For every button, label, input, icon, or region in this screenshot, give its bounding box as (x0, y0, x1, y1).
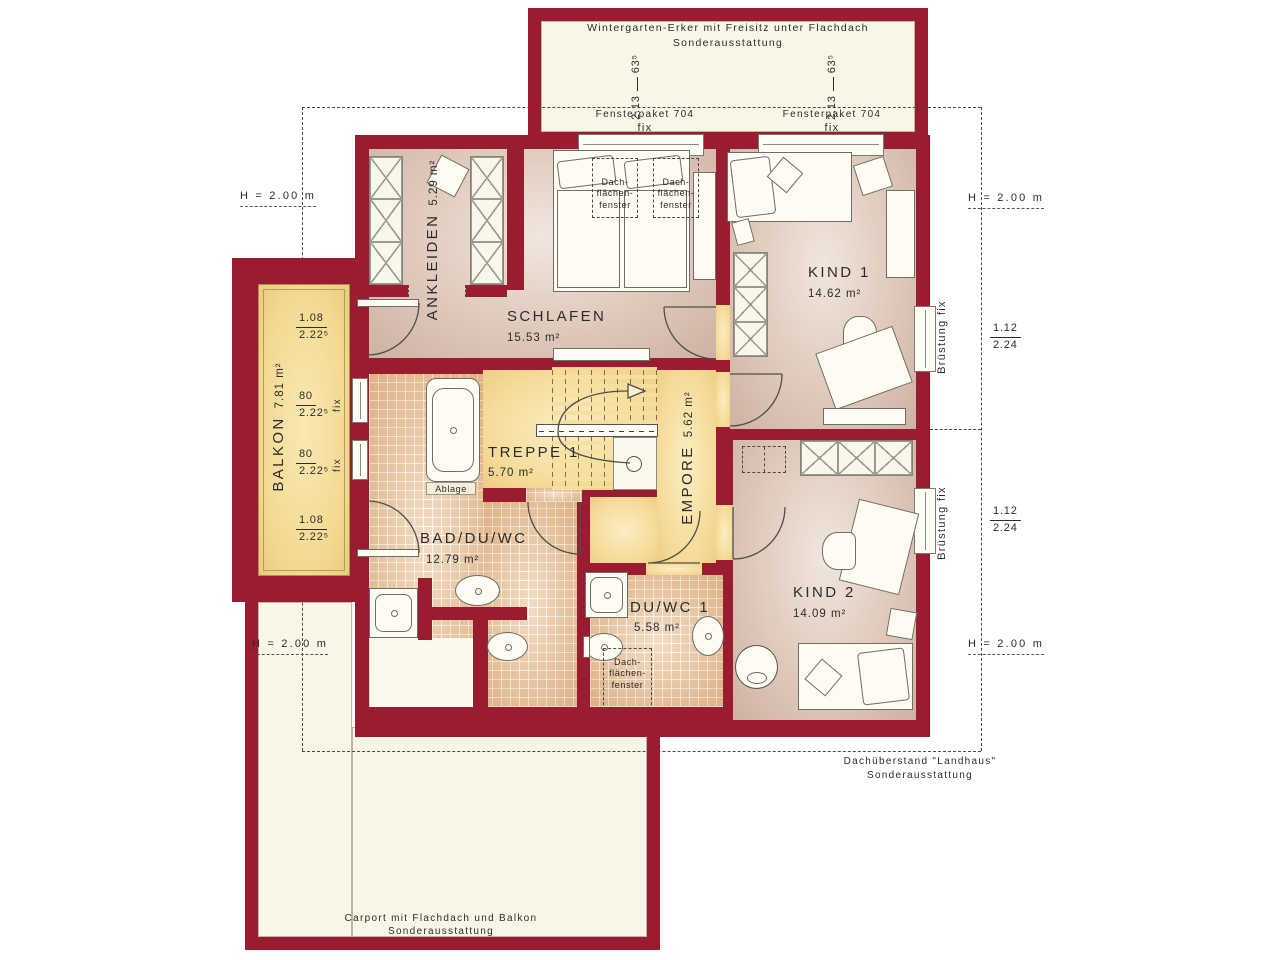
roof-window-outline: Dach- flächen- fenster (653, 158, 699, 218)
roof-window-label-line: fenster (660, 200, 692, 210)
door-gap-schlafen (716, 305, 730, 360)
height-label-top-left: H = 2.00 m (240, 190, 316, 207)
shelf (886, 190, 915, 278)
round-chair (735, 645, 778, 689)
dim-denominator: 2.22⁵ (296, 530, 332, 545)
room-area: 15.53 m² (507, 331, 606, 345)
fix-label: fix (331, 390, 345, 420)
bidet (487, 632, 528, 661)
roof-overhang-line-bottom (302, 751, 981, 752)
height-label-top-right: H = 2.00 m (968, 192, 1044, 209)
wardrobe (800, 440, 913, 476)
dim-denominator: 63⁵ (826, 54, 840, 73)
dim-denominator: 63⁵ (630, 54, 644, 73)
room-label-ankleiden: ANKLEIDEN 5.29 m² (416, 175, 450, 305)
roof-window-label: Dach- flächen- fenster (593, 177, 637, 211)
roof-window-label-line: Dach- (662, 177, 689, 187)
wardrobe-cell (471, 199, 503, 241)
room-label-balkon: BALKON 7.81 m² (262, 352, 296, 502)
dachueberstand-label-line2: Sonderausstattung (790, 770, 1050, 783)
wardrobe-cell (734, 322, 767, 356)
roof-window-label-line: fenster (612, 680, 644, 690)
height-label-bottom-right: H = 2.00 m (968, 638, 1044, 655)
floorplan-canvas: Dach- flächen- fenster Dach- flächen- fe… (0, 0, 1280, 960)
fix-text: fix (332, 458, 345, 472)
roof-window-outline: Dach- flächen- fenster (592, 158, 638, 218)
wardrobe-cell (370, 157, 402, 199)
room-area: 5.62 m² (682, 391, 696, 437)
bathtub-inner (432, 388, 474, 472)
height-label-bottom-left: H = 2.00 m (252, 638, 328, 655)
room-area: 5.58 m² (634, 621, 710, 635)
fix-label: fix (757, 122, 907, 136)
dim-denominator: 2.24 (990, 338, 1021, 353)
roof-window-label-line: Dach- (614, 657, 641, 667)
balkon-fix-dimension: 80 2.22⁵ (296, 390, 332, 421)
roof-window-label-line: fenster (599, 200, 631, 210)
floor-corridor (590, 497, 657, 563)
roof-window-label: Dach- flächen- fenster (654, 177, 698, 211)
room-area: 5.29 m² (427, 160, 441, 206)
wall-ankleiden-stub-left (369, 285, 408, 297)
carport-wall-right (647, 722, 660, 950)
fensterpaket-label: Fensterpaket 704 (570, 109, 720, 122)
pillow (730, 156, 777, 218)
wardrobe (369, 156, 403, 285)
bruestung-text: Brüstung fix (936, 486, 950, 560)
dim-denominator: 2.22⁵ (296, 406, 332, 421)
wardrobe-cell (370, 199, 402, 241)
room-name: BAD/DU/WC (420, 530, 527, 549)
wardrobe (470, 156, 504, 285)
round-chair-seat (747, 672, 767, 684)
room-label-treppe: TREPPE 1 5.70 m² (488, 444, 580, 480)
wardrobe-cell (838, 441, 875, 475)
room-area: 5.70 m² (488, 466, 580, 480)
desk-chair (822, 532, 856, 570)
fensterpaket-label: Fensterpaket 704 (757, 109, 907, 122)
shower-tray (375, 594, 412, 632)
room-label-empore: EMPORE 5.62 m² (672, 388, 704, 528)
wall-ankleiden-schlafen (507, 149, 524, 290)
roof-window-label: Dach- flächen- fenster (604, 657, 651, 691)
shower-tray (590, 577, 623, 613)
dim-denominator: 2.22⁵ (296, 328, 332, 343)
nightstand (886, 608, 917, 640)
roof-window-label-line: Dach- (601, 177, 628, 187)
dachueberstand-label-line1: Dachüberstand "Landhaus" (790, 756, 1050, 769)
door-leaf-bad-balkon (357, 549, 419, 557)
bay-title-line1: Wintergarten-Erker mit Freisitz unter Fl… (528, 22, 928, 35)
wardrobe-cell (370, 242, 402, 284)
wardrobe-cell (471, 242, 503, 284)
room-name: SCHLAFEN (507, 308, 606, 327)
bay-title-line2: Sonderausstattung (528, 37, 928, 50)
carport-label-line2: Sonderausstattung (246, 926, 636, 939)
room-area: 12.79 m² (426, 553, 527, 567)
balkon-fix-dimension: 80 2.22⁵ (296, 448, 332, 479)
stairs-post (626, 456, 642, 472)
room-name: TREPPE 1 (488, 444, 580, 463)
dim-divider (637, 77, 638, 91)
room-label-kind2: KIND 2 14.09 m² (793, 584, 856, 621)
window-balkon-fix-2 (352, 440, 368, 480)
stairs-upper-flight (552, 367, 657, 424)
wall-ankleiden-stub-right (466, 285, 507, 297)
room-name: ANKLEIDEN (424, 214, 443, 321)
washbasin (455, 575, 500, 606)
dim-denominator: 2.22⁵ (296, 464, 332, 479)
wardrobe (733, 252, 768, 357)
room-name: EMPORE (679, 445, 698, 524)
cabinet-outline (742, 446, 786, 473)
ablage-label: Ablage (427, 484, 475, 495)
bruestung-fix-label: Brüstung fix (936, 478, 950, 568)
room-name: DU/WC 1 (630, 599, 710, 618)
wardrobe-cell (734, 287, 767, 321)
wardrobe-cell (734, 253, 767, 287)
room-label-bad: BAD/DU/WC 12.79 m² (420, 530, 527, 567)
room-name: BALKON (270, 416, 289, 491)
cabinet-divider (764, 447, 765, 472)
window-kind1-east (914, 306, 936, 372)
door-gap-kind1 (716, 372, 730, 427)
pillow (857, 647, 910, 705)
door-gap-kind2 (716, 505, 733, 560)
window-balkon-fix-1 (352, 378, 368, 423)
fix-label: fix (570, 122, 720, 136)
carport-floor (352, 727, 647, 937)
roof-window-label-line: flächen- (609, 668, 646, 678)
balkon-door-dimension: 1.08 2.22⁵ (296, 514, 332, 545)
room-name: KIND 2 (793, 584, 856, 603)
door-gap-bad (526, 488, 582, 502)
dim-numerator: 1.12 (990, 505, 1021, 521)
toilet-tank (583, 636, 590, 658)
roof-window-label-line: flächen- (658, 188, 695, 198)
wardrobe-cell (875, 441, 912, 475)
sideboard (553, 348, 650, 361)
dim-numerator: 80 (296, 448, 316, 464)
ablage-shelf: Ablage (426, 482, 476, 495)
sideboard (823, 408, 906, 425)
side-window-dimension: 1.12 2.24 (990, 322, 1021, 353)
dim-numerator: 80 (296, 390, 316, 406)
dim-divider (833, 77, 834, 91)
carport-wall-bottom (245, 937, 660, 950)
room-label-duwc: DU/WC 1 5.58 m² (630, 599, 710, 635)
room-label-schlafen: SCHLAFEN 15.53 m² (507, 308, 606, 345)
stairs-handrail (536, 424, 658, 437)
roof-window-outline: Dach- flächen- fenster (603, 648, 652, 710)
room-area: 14.62 m² (808, 287, 871, 301)
dim-numerator: 1.08 (296, 312, 327, 328)
room-area: 7.81 m² (273, 362, 287, 408)
carport-label-line1: Carport mit Flachdach und Balkon (246, 913, 636, 926)
fix-label: fix (331, 450, 345, 480)
roof-ridge-line-right (930, 429, 981, 430)
bruestung-fix-label: Brüstung fix (936, 292, 950, 382)
roof-window-label-line: flächen- (597, 188, 634, 198)
fix-text: fix (332, 398, 345, 412)
wall-bad-half (418, 607, 527, 620)
dim-denominator: 2.24 (990, 521, 1021, 536)
room-label-kind1: KIND 1 14.62 m² (808, 264, 871, 301)
room-area: 14.09 m² (793, 607, 856, 621)
side-window-dimension: 1.12 2.24 (990, 505, 1021, 536)
wardrobe-cell (471, 157, 503, 199)
door-gap-duwc (646, 563, 702, 575)
bruestung-text: Brüstung fix (936, 300, 950, 374)
bad-storage-niche (370, 638, 473, 707)
wardrobe-cell (801, 441, 838, 475)
wall-niche-east (473, 620, 488, 707)
room-name: KIND 1 (808, 264, 871, 283)
balkon-door-dimension: 1.08 2.22⁵ (296, 312, 332, 343)
dim-numerator: 1.08 (296, 514, 327, 530)
door-leaf-schlafen-balkon (357, 299, 419, 307)
dim-numerator: 1.12 (990, 322, 1021, 338)
